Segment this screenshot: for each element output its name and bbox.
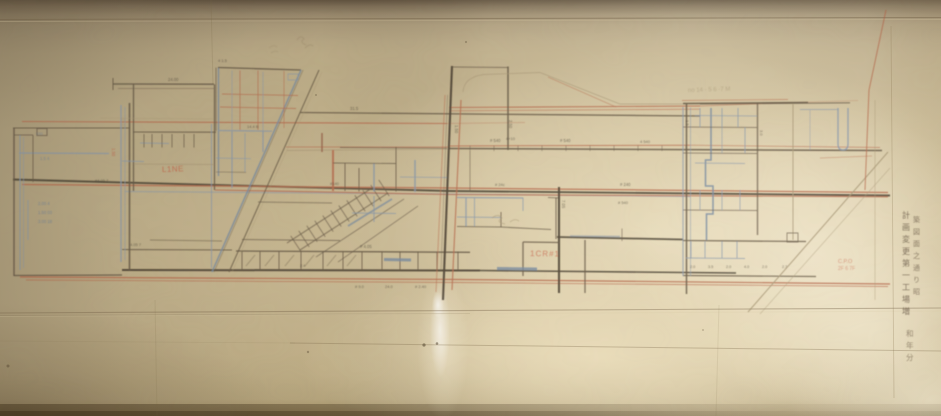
svg-text:2.7: 2.7 — [782, 265, 787, 269]
svg-text:# 24c: # 24c — [495, 182, 505, 187]
svg-text:増: 増 — [902, 306, 910, 316]
svg-text:4 1.5: 4 1.5 — [218, 58, 228, 63]
svg-text:計: 計 — [902, 210, 910, 220]
svg-text:1CR#1: 1CR#1 — [530, 249, 560, 259]
svg-text:之: 之 — [913, 251, 920, 260]
svg-text:# 240: # 240 — [620, 182, 631, 187]
svg-text:1.5: 1.5 — [685, 120, 690, 126]
svg-text:24.00: 24.00 — [168, 77, 179, 82]
svg-text:図: 図 — [913, 228, 920, 236]
svg-text:# 540: # 540 — [618, 200, 629, 205]
svg-text:1.50 03: 1.50 03 — [38, 210, 53, 215]
svg-text:15.0: 15.0 — [121, 118, 126, 127]
svg-text:4.0: 4.0 — [744, 265, 749, 269]
svg-text:# 540: # 540 — [560, 138, 571, 143]
svg-text:一: 一 — [902, 271, 910, 280]
svg-text:第: 第 — [902, 258, 910, 268]
svg-text:# 540: # 540 — [490, 138, 501, 143]
svg-text:# 9.0: # 9.0 — [355, 284, 365, 289]
svg-text:2.00 4: 2.00 4 — [38, 201, 50, 206]
svg-text:築: 築 — [913, 215, 920, 224]
svg-text:24.0: 24.0 — [385, 284, 394, 289]
svg-text:1.5 4: 1.5 4 — [40, 156, 50, 161]
svg-text:L1NE: L1NE — [162, 164, 184, 174]
svg-text:3.0: 3.0 — [759, 130, 764, 136]
svg-text:14.4 B: 14.4 B — [247, 124, 259, 129]
svg-text:面: 面 — [913, 240, 920, 248]
svg-text:# 4.05: # 4.05 — [360, 244, 372, 249]
svg-text:3.5: 3.5 — [708, 265, 713, 269]
svg-text:≠4.05 7: ≠4.05 7 — [95, 178, 109, 183]
svg-text:変: 変 — [902, 234, 910, 244]
svg-text:31.5: 31.5 — [350, 106, 359, 111]
svg-text:和: 和 — [906, 329, 914, 338]
svg-text:#140: #140 — [330, 181, 340, 186]
svg-text:更: 更 — [902, 247, 910, 256]
svg-text:4+10: 4+10 — [506, 136, 516, 141]
svg-text:2F 6 7F: 2F 6 7F — [838, 266, 855, 272]
svg-text:通: 通 — [913, 263, 920, 272]
svg-text:2.50: 2.50 — [508, 120, 513, 129]
svg-text:1.50: 1.50 — [111, 148, 116, 157]
svg-text:分: 分 — [906, 353, 914, 362]
svg-text:2.0: 2.0 — [726, 265, 731, 269]
svg-text:年: 年 — [906, 340, 914, 350]
svg-text:150: 150 — [36, 131, 43, 136]
svg-text:C.P.O: C.P.O — [838, 259, 853, 265]
svg-text:3.00 18: 3.00 18 — [38, 219, 53, 224]
svg-text:7.05: 7.05 — [561, 200, 566, 209]
svg-text:4.05 7: 4.05 7 — [130, 242, 142, 247]
svg-text:1.50: 1.50 — [454, 125, 459, 134]
svg-text:2.4: 2.4 — [300, 264, 305, 268]
svg-text:工: 工 — [902, 283, 910, 292]
svg-text:昭: 昭 — [913, 288, 920, 296]
svg-text:画: 画 — [902, 223, 910, 232]
svg-text:り: り — [913, 276, 920, 284]
svg-text:2.0: 2.0 — [762, 265, 767, 269]
svg-text:4 540: 4 540 — [640, 139, 651, 144]
svg-text:# 2.40: # 2.40 — [415, 284, 427, 289]
svg-text:場: 場 — [902, 294, 910, 304]
svg-text:2.0: 2.0 — [690, 265, 695, 269]
